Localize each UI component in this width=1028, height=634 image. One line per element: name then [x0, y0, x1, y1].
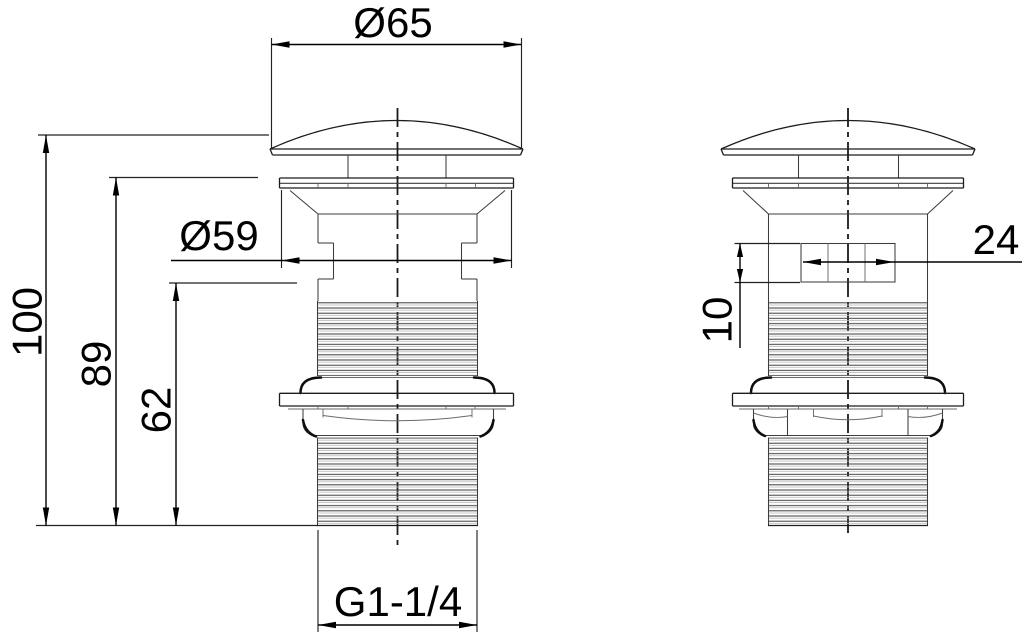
dim-label-cap-diameter: Ø65 — [353, 0, 432, 46]
dim-label-overall-height: 100 — [4, 287, 51, 357]
technical-drawing: Ø65 Ø59 100 89 62 G1-1/4 — [0, 0, 1028, 634]
dim-label-overflow-slot-height: 10 — [694, 297, 741, 344]
dimension-flange-diameter: Ø59 — [171, 190, 512, 268]
front-lower-thread — [317, 438, 478, 526]
dim-label-height-to-flange: 89 — [73, 341, 120, 388]
side-upper-thread — [768, 302, 928, 376]
side-lower-thread — [768, 438, 928, 526]
dimension-overall-height: 100 — [4, 135, 319, 526]
front-flange — [280, 178, 514, 188]
dimension-thread-size: G1-1/4 — [318, 530, 477, 632]
dim-label-flange-diameter: Ø59 — [179, 212, 258, 259]
front-view — [270, 108, 523, 545]
drawing-canvas: Ø65 Ø59 100 89 62 G1-1/4 — [0, 0, 1028, 634]
front-upper-thread — [318, 301, 478, 376]
side-view — [721, 108, 975, 533]
dim-label-thread-size: G1-1/4 — [334, 578, 462, 625]
dimension-overflow-slot-width: 24 — [803, 216, 1022, 265]
dim-label-height-to-overflow: 62 — [133, 387, 180, 434]
front-backnut-plate — [280, 393, 514, 409]
dimension-height-to-overflow: 62 — [133, 283, 298, 526]
dim-label-overflow-slot-width: 24 — [973, 216, 1020, 263]
front-cap — [270, 121, 523, 156]
dimension-cap-diameter: Ø65 — [272, 0, 522, 148]
